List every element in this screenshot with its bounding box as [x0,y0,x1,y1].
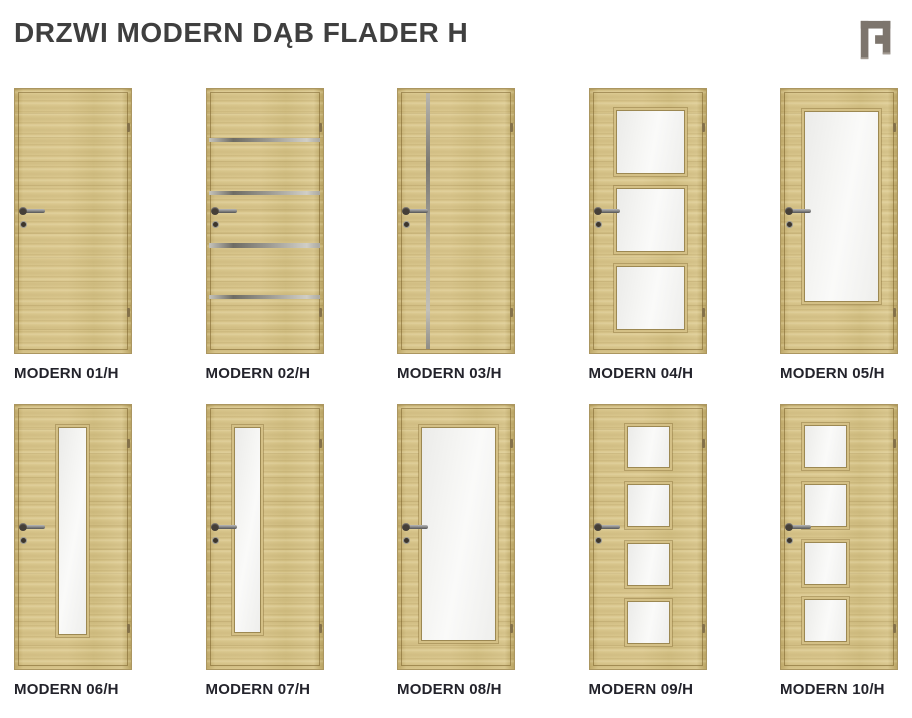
door-label: MODERN 06/H [14,681,132,698]
door-card-modern-06h: MODERN 06/H [14,404,132,698]
door-lever-icon [403,525,428,529]
door-frame-icon [856,16,898,64]
door-hinge-icon [510,624,513,633]
door-hinge-icon [127,624,130,633]
door-hinge-icon [893,308,896,317]
door-lever-icon [403,209,428,213]
door-lever-icon [212,525,237,529]
glass-panel [616,266,685,330]
door-handle-icon [212,525,242,544]
glass-panel [627,601,671,644]
door-label: MODERN 01/H [14,365,132,382]
door-handle-icon [403,525,433,544]
door-hinge-icon [319,624,322,633]
door-hinge-icon [702,123,705,132]
door-lock-icon [786,221,793,228]
door-card-modern-05h: MODERN 05/H [780,88,898,382]
door-image [589,88,707,354]
door-lock-icon [595,221,602,228]
door-card-modern-08h: MODERN 08/H [397,404,515,698]
door-lever-icon [595,209,620,213]
door-image [14,88,132,354]
door-hinge-icon [510,439,513,448]
door-lock-icon [20,537,27,544]
door-card-modern-03h: MODERN 03/H [397,88,515,382]
inox-strip-horizontal [209,191,319,195]
door-hinge-icon [127,123,130,132]
glass-panel [627,484,671,527]
door-hinge-icon [319,439,322,448]
door-hinge-icon [127,308,130,317]
page-header: DRZWI MODERN DĄB FLADER H [14,0,898,76]
inox-strip-horizontal [209,138,319,142]
door-hinge-icon [702,439,705,448]
door-lock-icon [403,221,410,228]
glass-panel [804,111,879,302]
glass-panel [627,426,671,469]
door-hinge-icon [510,123,513,132]
glass-panel [804,425,847,468]
door-grid-row-1: MODERN 01/H MODERN 02/H MODERN 03/H [14,88,898,382]
glass-panel [627,543,671,586]
door-label: MODERN 09/H [589,681,707,698]
door-image [14,404,132,670]
door-image [206,88,324,354]
door-hinge-icon [510,308,513,317]
door-label: MODERN 10/H [780,681,898,698]
glass-panel [616,110,685,174]
door-lock-icon [595,537,602,544]
inox-strip-horizontal [209,295,319,299]
door-lock-icon [20,221,27,228]
door-lever-icon [786,525,811,529]
door-handle-icon [20,209,50,228]
page-title: DRZWI MODERN DĄB FLADER H [14,14,468,52]
door-image [397,88,515,354]
glass-panel [58,427,87,635]
door-card-modern-04h: MODERN 04/H [589,88,707,382]
door-lever-icon [595,525,620,529]
door-card-modern-10h: MODERN 10/H [780,404,898,698]
door-hinge-icon [893,624,896,633]
door-image [780,404,898,670]
door-hinge-icon [319,308,322,317]
door-grid-row-2: MODERN 06/H MODERN 07/H MODERN 08/H [14,404,898,698]
door-lever-icon [212,209,237,213]
door-lock-icon [212,221,219,228]
door-label: MODERN 03/H [397,365,515,382]
glass-panel [804,542,847,585]
door-label: MODERN 07/H [206,681,324,698]
door-handle-icon [786,525,816,544]
door-handle-icon [403,209,433,228]
door-card-modern-02h: MODERN 02/H [206,88,324,382]
door-lock-icon [786,537,793,544]
door-lever-icon [786,209,811,213]
door-card-modern-07h: MODERN 07/H [206,404,324,698]
door-hinge-icon [319,123,322,132]
door-handle-icon [595,209,625,228]
door-label: MODERN 04/H [589,365,707,382]
door-card-modern-01h: MODERN 01/H [14,88,132,382]
door-image [780,88,898,354]
door-image [397,404,515,670]
glass-panel [804,484,847,527]
door-hinge-icon [893,123,896,132]
door-handle-icon [20,525,50,544]
door-handle-icon [786,209,816,228]
door-image [589,404,707,670]
door-lever-icon [20,209,45,213]
catalog-page: DRZWI MODERN DĄB FLADER H MODERN 01/H [0,0,912,698]
door-handle-icon [212,209,242,228]
door-hinge-icon [702,308,705,317]
door-hinge-icon [893,439,896,448]
inox-strip-horizontal [209,243,319,247]
door-handle-icon [595,525,625,544]
door-lever-icon [20,525,45,529]
glass-panel [616,188,685,252]
door-label: MODERN 08/H [397,681,515,698]
door-hinge-icon [702,624,705,633]
door-lock-icon [212,537,219,544]
door-lock-icon [403,537,410,544]
door-card-modern-09h: MODERN 09/H [589,404,707,698]
door-image [206,404,324,670]
door-label: MODERN 02/H [206,365,324,382]
door-label: MODERN 05/H [780,365,898,382]
glass-panel [804,599,847,642]
door-hinge-icon [127,439,130,448]
